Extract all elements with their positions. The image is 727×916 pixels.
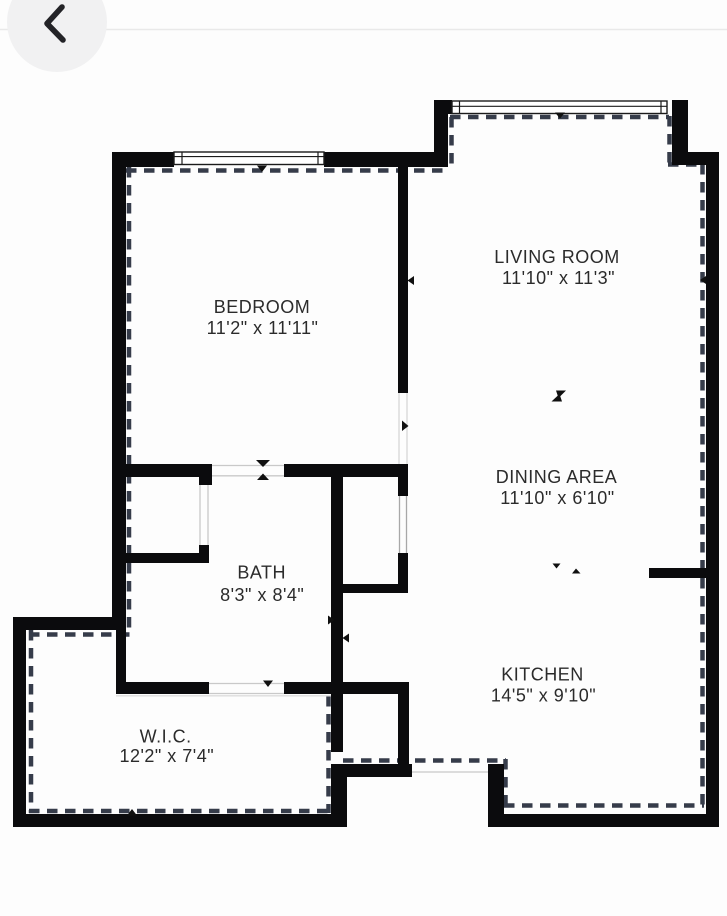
svg-text:11'10" x 11'3": 11'10" x 11'3" [502, 268, 615, 288]
svg-text:DINING AREA: DINING AREA [496, 467, 618, 487]
svg-text:W.I.C.: W.I.C. [140, 727, 192, 747]
svg-text:BEDROOM: BEDROOM [214, 297, 311, 317]
svg-text:LIVING ROOM: LIVING ROOM [494, 247, 620, 267]
svg-text:11'10" x 6'10": 11'10" x 6'10" [500, 488, 614, 508]
svg-text:BATH: BATH [237, 563, 286, 583]
svg-text:12'2" x 7'4": 12'2" x 7'4" [119, 746, 214, 766]
svg-text:11'2" x 11'11": 11'2" x 11'11" [207, 318, 319, 338]
svg-text:14'5" x 9'10": 14'5" x 9'10" [491, 686, 596, 706]
svg-text:KITCHEN: KITCHEN [501, 664, 584, 684]
svg-text:8'3" x 8'4": 8'3" x 8'4" [220, 585, 304, 605]
